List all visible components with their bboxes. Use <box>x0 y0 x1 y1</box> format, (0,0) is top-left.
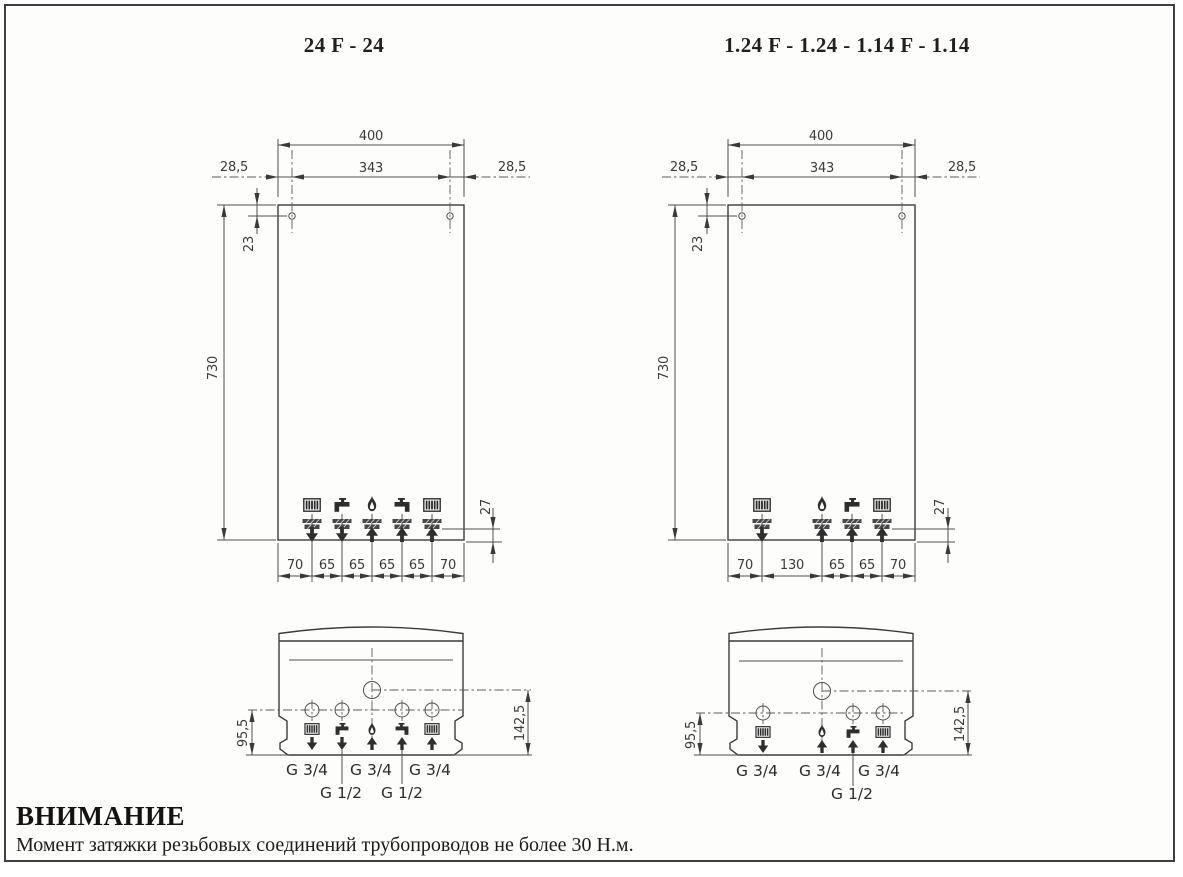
dim-hole-offset-label: 23 <box>691 236 706 252</box>
dim-connections-depth-label: 95,5 <box>236 719 251 747</box>
warning-text: Момент затяжки резьбовых соединений труб… <box>16 834 634 857</box>
left-front-view: 400 343 28,5 28,5 23 730 27 70 65 65 65 … <box>206 129 530 582</box>
dim-height-label: 730 <box>206 356 221 380</box>
right-front-view: 400 343 28,5 28,5 23 730 27 70 130 65 65… <box>657 129 980 582</box>
tap-icon <box>336 723 349 735</box>
tap-icon <box>396 723 409 735</box>
dimension-arrows <box>697 691 970 755</box>
dim-spacing-label: 65 <box>829 558 845 573</box>
dimension-lines <box>675 145 948 576</box>
thread-label: G 1/2 <box>320 784 362 802</box>
thread-label: G 3/4 <box>350 761 392 779</box>
flow-up-icon <box>367 737 377 750</box>
thread-label: G 3/4 <box>409 761 451 779</box>
dim-spacing-label: 65 <box>379 558 395 573</box>
dim-spacing-label: 70 <box>890 558 906 573</box>
warning-heading: ВНИМАНИЕ <box>16 801 185 832</box>
dim-connection-offset-label: 27 <box>933 499 948 515</box>
flow-up-icon <box>817 740 827 753</box>
dimension-arrows <box>672 142 950 578</box>
dim-offset-right-label: 28,5 <box>948 160 976 175</box>
dimension-arrows <box>221 142 495 578</box>
dim-hole-span-label: 343 <box>810 161 834 176</box>
dim-spacing-label: 130 <box>780 558 804 573</box>
flame-icon <box>368 496 376 511</box>
flame-icon <box>369 722 376 735</box>
dim-hole-offset-label: 23 <box>242 236 257 252</box>
dim-gas-depth-label: 142,5 <box>953 706 968 742</box>
connection-symbols <box>753 496 892 542</box>
connection-symbols <box>756 724 890 753</box>
boiler-bottom-outline <box>279 627 463 755</box>
dim-spacing-label: 70 <box>440 558 456 573</box>
tap-icon <box>335 498 350 512</box>
boiler-outline <box>728 205 915 540</box>
thread-label: G 1/2 <box>831 785 873 803</box>
tap-icon <box>847 726 860 738</box>
thread-label: G 3/4 <box>286 761 328 779</box>
flow-down-icon <box>758 740 768 753</box>
flow-down-icon <box>337 737 347 750</box>
dim-spacing-label: 70 <box>287 558 303 573</box>
dim-hole-span-label: 343 <box>359 161 383 176</box>
flame-icon <box>819 724 826 737</box>
dim-spacing-label: 65 <box>349 558 365 573</box>
flame-icon <box>818 496 826 511</box>
radiator-icon <box>754 499 770 511</box>
radiator-icon <box>876 727 890 738</box>
boiler-outline <box>278 205 464 540</box>
flow-arrows <box>307 737 437 750</box>
dim-spacing-label: 65 <box>859 558 875 573</box>
dimension-arrows <box>249 690 530 755</box>
flow-up-icon <box>848 740 858 753</box>
dim-offset-left-label: 28,5 <box>670 160 698 175</box>
dim-connection-offset-label: 27 <box>479 499 494 515</box>
dim-offset-left-label: 28,5 <box>220 160 248 175</box>
dim-spacing-label: 70 <box>737 558 753 573</box>
dim-offset-right-label: 28,5 <box>498 160 526 175</box>
manual-page: { "titles": { "left": "24 F - 24", "righ… <box>0 0 1183 877</box>
thread-label: G 3/4 <box>858 762 900 780</box>
tap-icon <box>845 498 860 512</box>
thread-label: G 3/4 <box>799 762 841 780</box>
flow-up-icon <box>397 737 407 750</box>
dim-height-label: 730 <box>657 356 672 380</box>
connection-symbols <box>303 496 442 542</box>
dim-spacing-label: 65 <box>409 558 425 573</box>
centerlines <box>248 648 531 752</box>
dimension-drawing: 400 343 28,5 28,5 23 730 27 70 65 65 65 … <box>0 0 1183 877</box>
radiator-icon <box>756 727 770 738</box>
radiator-icon <box>424 499 440 511</box>
flow-down-icon <box>307 737 317 750</box>
dim-width-label: 400 <box>359 129 383 144</box>
thread-label: G 1/2 <box>381 784 423 802</box>
dim-width-label: 400 <box>809 129 833 144</box>
radiator-icon <box>874 499 890 511</box>
thread-label: G 3/4 <box>736 762 778 780</box>
dimension-lines <box>224 145 493 576</box>
dim-connections-depth-label: 95,5 <box>684 721 699 749</box>
tap-icon <box>395 498 410 512</box>
left-bottom-view: 95,5 142,5 G 3/4 G 3/4 G 3/4 G 1/2 G 1/2 <box>236 627 532 802</box>
dim-spacing-label: 65 <box>319 558 335 573</box>
radiator-icon <box>425 724 439 735</box>
right-bottom-view: 95,5 142,5 G 3/4 G 3/4 G 3/4 G 1/2 <box>684 627 972 803</box>
flow-up-icon <box>427 737 437 750</box>
flow-up-icon <box>878 740 888 753</box>
radiator-icon <box>304 499 320 511</box>
flow-arrows <box>758 740 888 753</box>
dim-gas-depth-label: 142,5 <box>513 705 528 741</box>
radiator-icon <box>305 724 319 735</box>
